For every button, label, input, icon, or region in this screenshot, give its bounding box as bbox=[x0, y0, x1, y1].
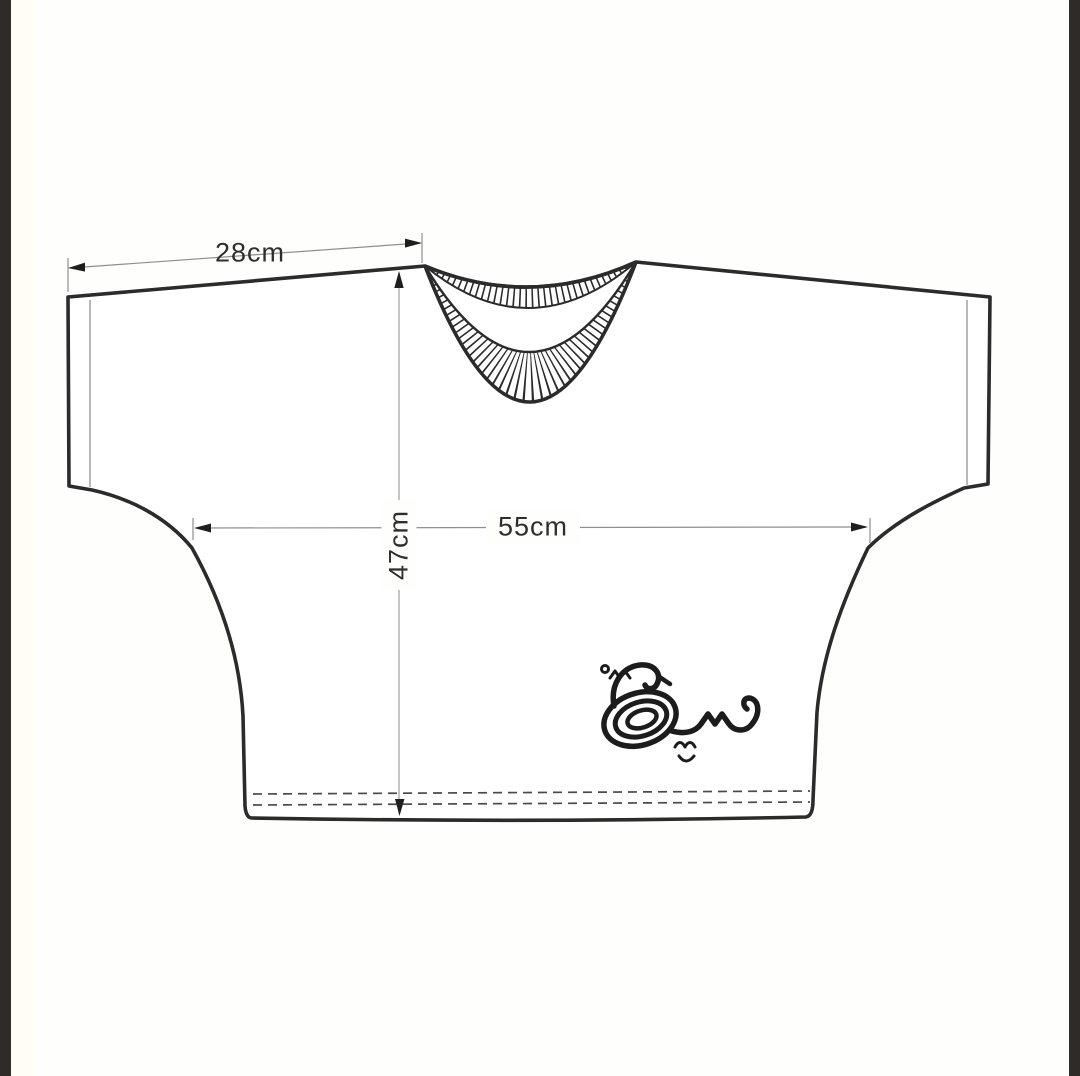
arrow-right-icon bbox=[405, 239, 422, 248]
chest-width-label: 55cm bbox=[486, 510, 580, 545]
arrow-left-icon bbox=[68, 263, 85, 272]
pattern-photo: 28cm 55cm 47cm bbox=[0, 0, 1080, 1076]
shoulder-width-label: 28cm bbox=[215, 240, 285, 267]
body-length-label: 47cm bbox=[382, 500, 417, 590]
